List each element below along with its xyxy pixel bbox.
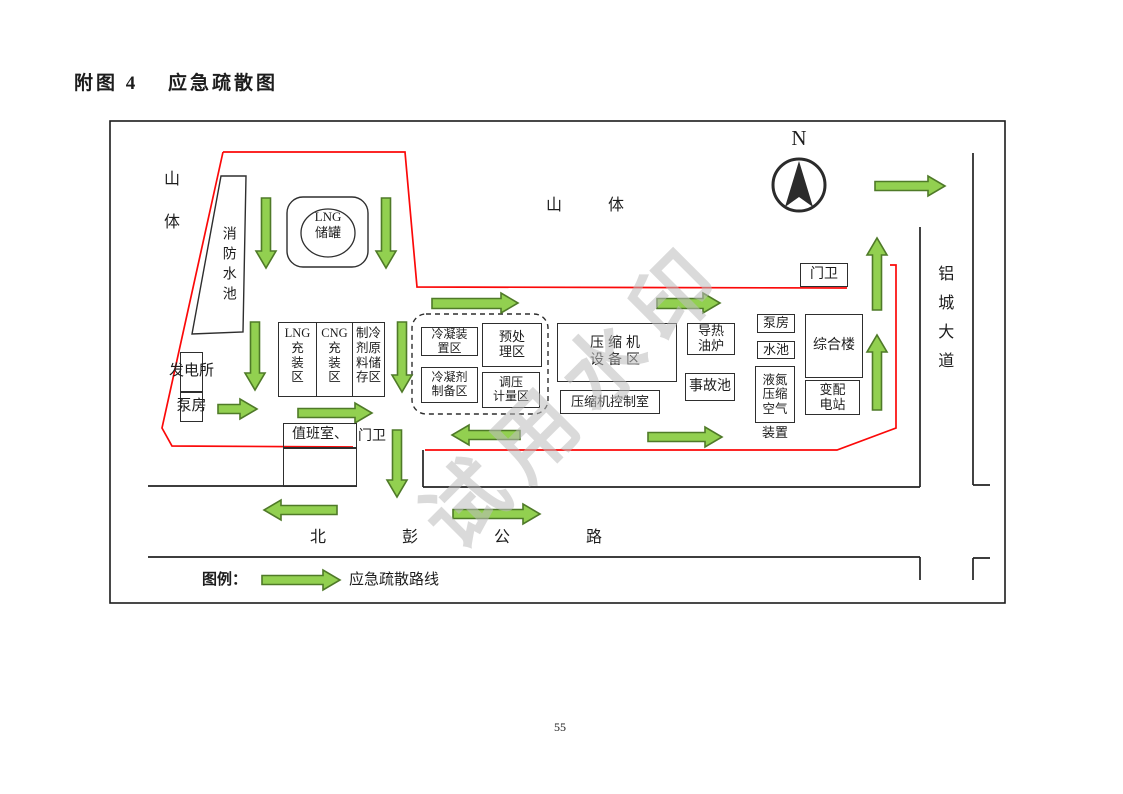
pump-house-left-box: 泵房 <box>180 392 203 422</box>
power-station-box: 发电所 <box>180 352 203 392</box>
arrow-down-right-of-lng-tank <box>376 198 396 268</box>
legend-label: 图例： <box>202 571 247 589</box>
south-road-label: 北彭公路 <box>310 528 678 547</box>
filling-area-block: LNG 充 装 区 CNG 充 装 区 制冷 剂原 料储 存区 <box>278 322 385 397</box>
compressor-control-room-box: 压缩机控制室 <box>560 390 660 414</box>
mountain-label-center: 山体 <box>546 196 670 215</box>
lng-filling-cell: LNG 充 装 区 <box>279 323 316 396</box>
legend-arrow <box>262 570 340 590</box>
document-page: 附图 4 应急疏散图 <box>0 0 1123 794</box>
compressor-area-box: 压缩机 设备区 <box>557 323 677 382</box>
arrow-right-north-exit <box>875 176 945 196</box>
nitrogen-air-unit-suffix: 装置 <box>755 425 795 441</box>
north-gate-box: 门卫 <box>800 263 848 287</box>
arrow-left-on-road <box>264 500 337 520</box>
arrow-down-south-gate <box>387 430 407 497</box>
south-gate-label: 门卫 <box>358 429 386 446</box>
arrow-right-below-filling <box>298 403 372 423</box>
fire-pool-label: 消防水池 <box>219 220 236 312</box>
accident-pool-box: 事故池 <box>685 373 735 401</box>
pump-house-right-box: 泵房 <box>757 314 795 333</box>
duty-room-building <box>283 448 357 487</box>
legend-route-label: 应急疏散路线 <box>349 571 439 589</box>
office-building-box: 综合楼 <box>805 314 863 378</box>
pretreatment-area-box: 预处 理区 <box>482 323 542 367</box>
lng-tank-label: LNG 储罐 <box>301 209 355 240</box>
arrow-down-left-of-lng-tank <box>256 198 276 268</box>
arrow-right-near-pump <box>218 399 257 419</box>
nitrogen-air-unit-box: 液氮 压缩 空气 <box>755 366 795 423</box>
oil-furnace-box: 导热 油炉 <box>687 323 735 355</box>
arrow-right-on-road <box>453 504 540 524</box>
metering-area-box: 调压 计量区 <box>482 372 540 408</box>
condenser-area-box: 冷凝装 置区 <box>421 327 478 356</box>
arrow-right-upper-middle <box>432 293 518 313</box>
north-compass-icon <box>773 159 825 211</box>
arrow-right-upper-east <box>657 293 720 313</box>
cng-filling-cell: CNG 充 装 区 <box>316 323 352 396</box>
refrigerant-storage-cell: 制冷 剂原 料储 存区 <box>352 323 384 396</box>
east-road-label: 铝城大道 <box>934 258 953 388</box>
duty-room-box: 值班室、 <box>283 423 357 448</box>
arrow-down-right-of-filling-area <box>392 322 412 392</box>
substation-box: 变配 电站 <box>805 380 860 415</box>
arrow-left-toward-gate <box>452 425 520 445</box>
water-pool-box: 水池 <box>757 341 795 359</box>
arrow-down-left-of-filling-area <box>245 322 265 390</box>
arrow-up-east-lower <box>867 335 887 410</box>
arrow-right-lower-east <box>648 427 722 447</box>
north-label: N <box>788 126 810 151</box>
condensate-prep-box: 冷凝剂 制备区 <box>421 367 478 403</box>
mountain-label-left: 山 体 <box>158 158 186 244</box>
page-number: 55 <box>540 720 580 735</box>
arrow-up-east-upper <box>867 238 887 310</box>
